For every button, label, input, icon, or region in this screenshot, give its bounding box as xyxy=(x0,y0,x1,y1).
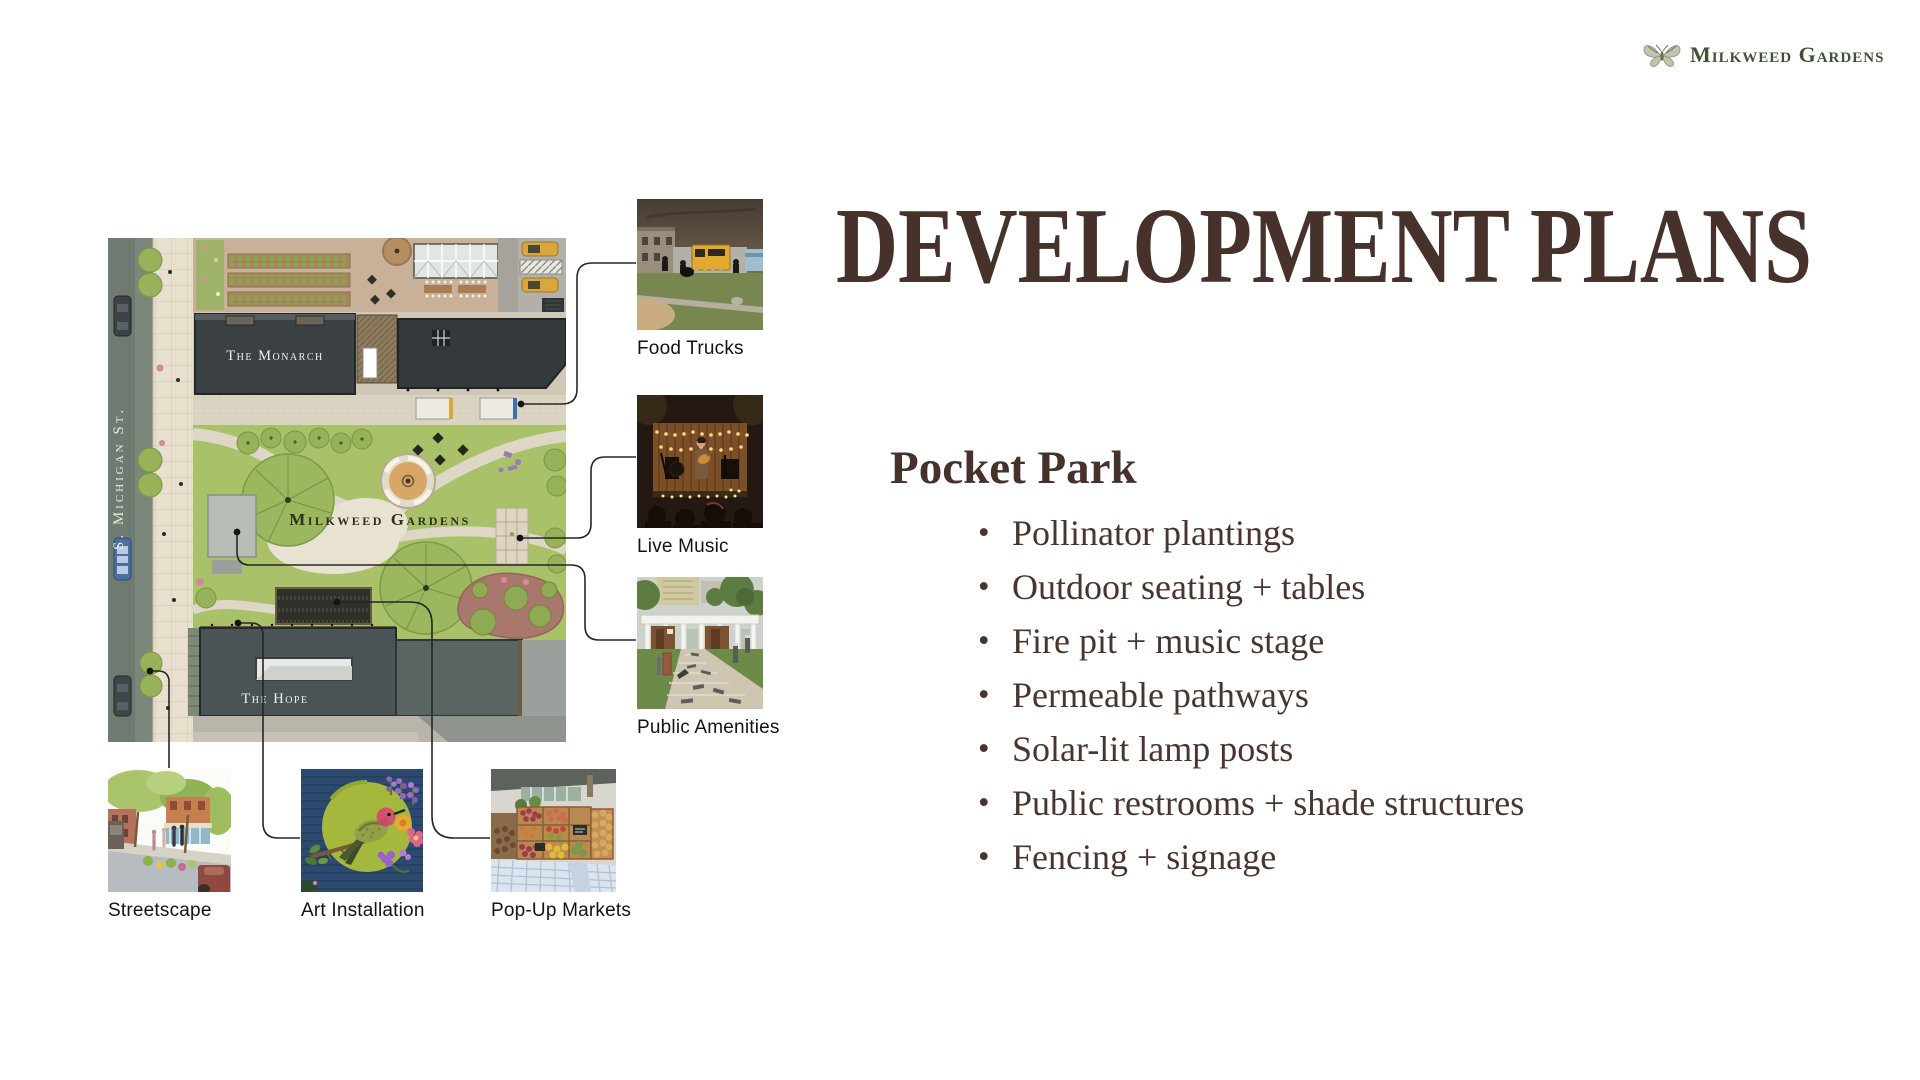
bullet-item: Public restrooms + shade structures xyxy=(978,776,1524,830)
bullet-item: Permeable pathways xyxy=(978,668,1524,722)
site-plan-illustration: The Monarch xyxy=(108,238,566,742)
callout-label-food-trucks: Food Trucks xyxy=(637,338,763,360)
logo-wordmark: Milkweed Gardens xyxy=(1690,42,1884,68)
section-heading: Pocket Park xyxy=(890,441,1137,495)
public-amenities-thumbnail: Public Amenities xyxy=(637,577,780,739)
building-label-monarch: The Monarch xyxy=(226,348,323,364)
bullet-item: Solar-lit lamp posts xyxy=(978,722,1524,776)
bullet-item: Fencing + signage xyxy=(978,830,1524,884)
callout-label-art-installation: Art Installation xyxy=(301,900,425,922)
food-trucks-image xyxy=(637,199,763,330)
streetscape-image xyxy=(108,769,231,892)
bullet-item: Fire pit + music stage xyxy=(978,614,1524,668)
callout-label-streetscape: Streetscape xyxy=(108,900,231,922)
pop-up-markets-thumbnail: Pop-Up Markets xyxy=(491,769,631,922)
public-amenities-image xyxy=(637,577,763,709)
live-music-thumbnail: Live Music xyxy=(637,395,763,558)
pop-up-markets-image xyxy=(491,769,616,892)
bullet-item: Outdoor seating + tables xyxy=(978,560,1524,614)
page-title: DEVELOPMENT PLANS xyxy=(836,198,1846,318)
callout-label-pop-up-markets: Pop-Up Markets xyxy=(491,900,631,922)
street-label: S. Michigan St. xyxy=(111,407,127,550)
page-title-text: DEVELOPMENT PLANS xyxy=(836,198,1812,306)
art-installation-image xyxy=(301,769,423,892)
slide: Milkweed Gardens DEVELOPMENT PLANS Pocke… xyxy=(0,0,1920,1080)
callout-label-live-music: Live Music xyxy=(637,536,763,558)
butterfly-icon xyxy=(1642,40,1682,70)
building-label-hope: The Hope xyxy=(241,691,308,707)
park-label: Milkweed Gardens xyxy=(289,510,471,529)
bullet-list: Pollinator plantings Outdoor seating + t… xyxy=(978,506,1524,884)
callout-label-public-amenities: Public Amenities xyxy=(637,717,780,739)
streetscape-thumbnail: Streetscape xyxy=(108,769,231,922)
art-installation-thumbnail: Art Installation xyxy=(301,769,425,922)
live-music-image xyxy=(637,395,763,528)
bullet-item: Pollinator plantings xyxy=(978,506,1524,560)
logo: Milkweed Gardens xyxy=(1642,40,1884,70)
site-plan-map: The Monarch xyxy=(108,238,566,742)
food-trucks-thumbnail: Food Trucks xyxy=(637,199,763,360)
